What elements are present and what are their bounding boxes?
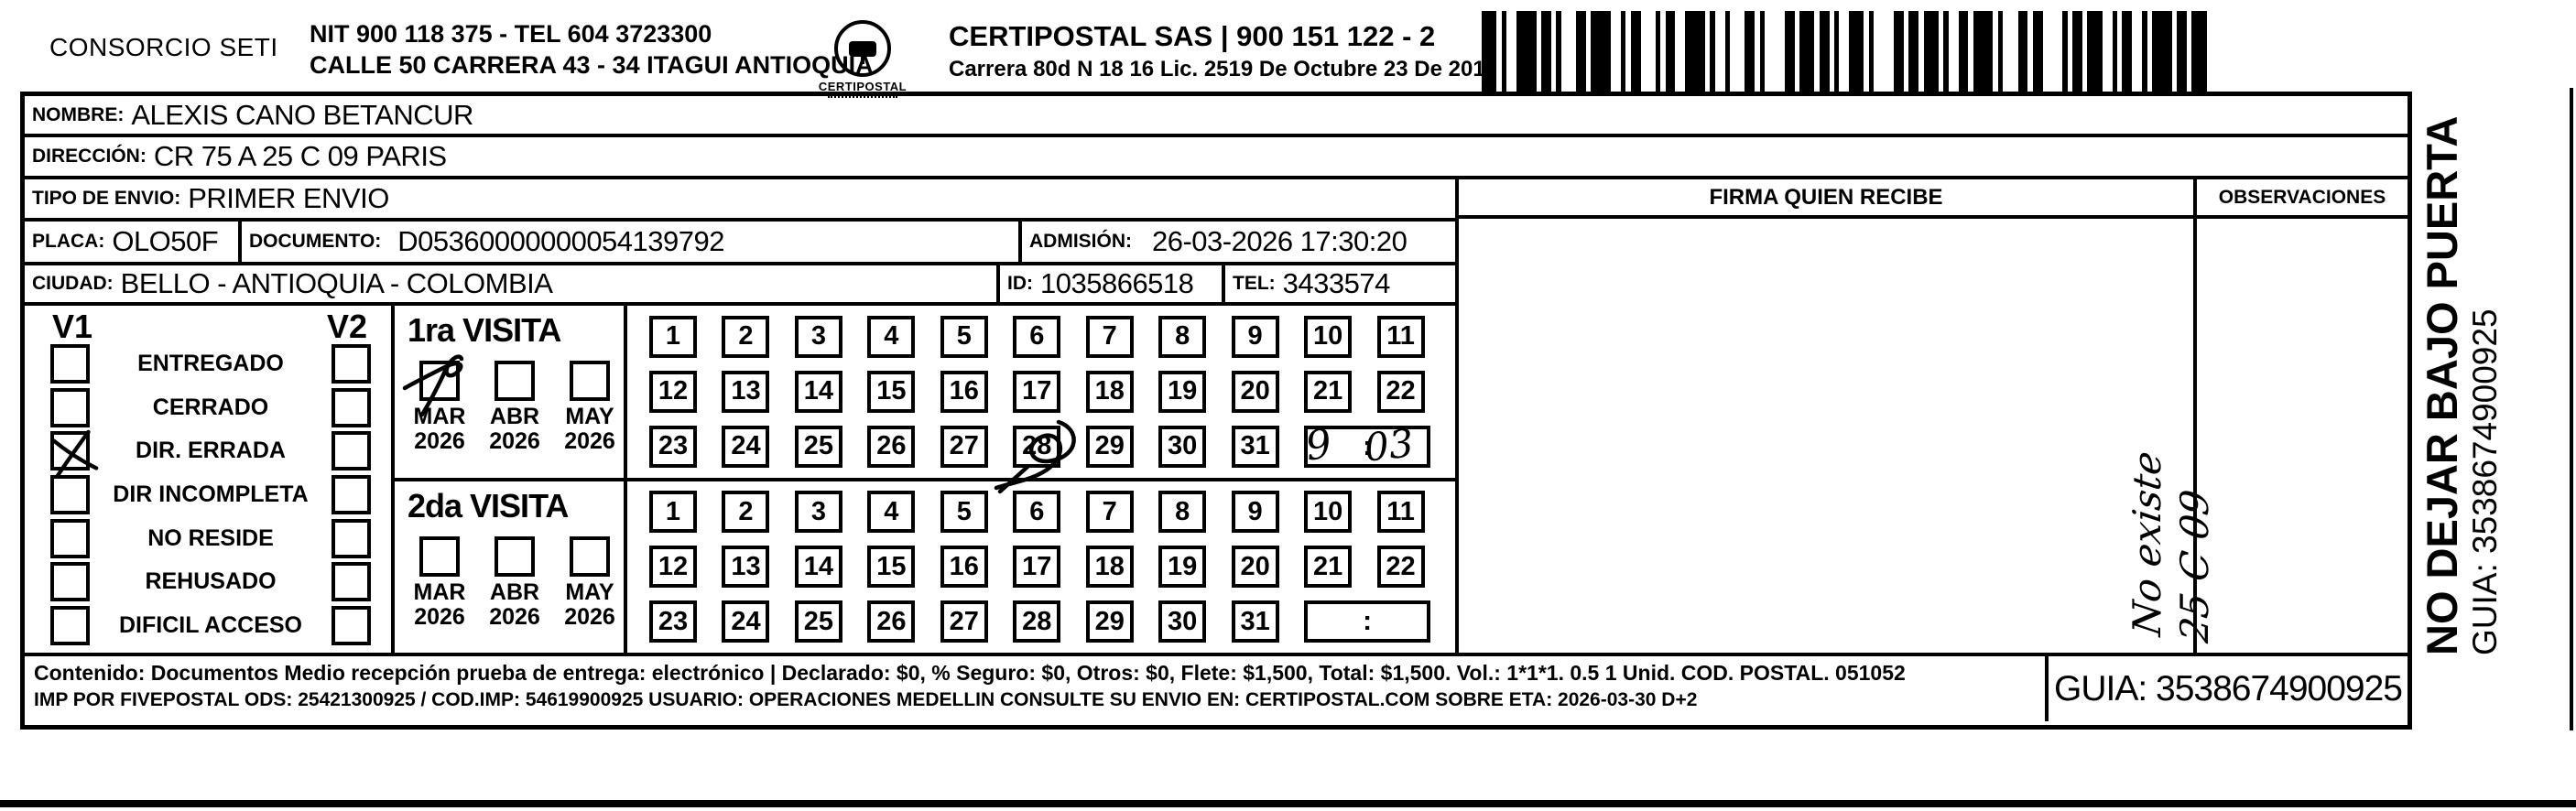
month-year-label: 2026 <box>564 605 615 630</box>
day-checkbox-13[interactable]: 13 <box>722 371 769 413</box>
day-checkbox-6[interactable]: 6 <box>1013 491 1060 533</box>
firma-header: FIRMA QUIEN RECIBE <box>1459 179 2193 219</box>
day-checkbox-19[interactable]: 19 <box>1158 371 1206 413</box>
barcode-bar <box>1675 11 1685 95</box>
month-column-mar: MAR2026 <box>406 536 473 630</box>
id-cell: ID: 1035866518 <box>996 265 1222 302</box>
day-checkbox-11[interactable]: 11 <box>1377 316 1425 358</box>
ciudad-value: BELLO - ANTIOQUIA - COLOMBIA <box>121 267 553 300</box>
v1-column-header: V1 <box>52 308 92 346</box>
day-checkbox-3[interactable]: 3 <box>795 491 842 533</box>
month-column-abr: ABR2026 <box>481 536 549 630</box>
placa-documento-row: PLACA: OLO50F DOCUMENTO: D05360000000054… <box>25 222 1455 265</box>
v1-checkbox-dir-errada[interactable] <box>50 431 90 470</box>
barcode-bar <box>1874 11 1894 95</box>
visit-month-panel: 2da VISITAMAR2026ABR2026MAY2026 <box>395 481 627 654</box>
month-checkbox-may[interactable] <box>570 361 610 401</box>
delivery-time-box[interactable]: : <box>1304 600 1430 643</box>
day-checkbox-14[interactable]: 14 <box>795 546 842 588</box>
day-checkbox-5[interactable]: 5 <box>940 491 988 533</box>
barcode-bar <box>1715 11 1725 95</box>
barcode-bar <box>1894 11 1904 95</box>
tel-label: TEL: <box>1233 273 1276 295</box>
day-checkbox-2[interactable]: 2 <box>722 316 769 358</box>
barcode-bar <box>2087 11 2102 95</box>
tel-cell: TEL: 3433574 <box>1222 265 1455 302</box>
barcode-bar <box>1576 11 1586 95</box>
v1-checkbox-no-reside[interactable] <box>50 519 90 558</box>
side-instruction: NO DEJAR BAJO PUERTA GUIA: 3538674900925 <box>2419 101 2505 655</box>
company-name: CONSORCIO SETI <box>49 33 278 62</box>
certipostal-logo: CERTIPOSTAL <box>811 20 914 98</box>
barcode-bar <box>1959 11 1969 95</box>
month-checkbox-may[interactable] <box>570 536 610 577</box>
day-checkbox-15[interactable]: 15 <box>867 371 915 413</box>
barcode-bar <box>1631 11 1641 95</box>
barcode-bar <box>1506 11 1516 95</box>
tipo-envio-label: TIPO DE ENVIO: <box>32 188 180 210</box>
id-value: 1035866518 <box>1040 267 1193 300</box>
page-right-rule <box>2570 88 2573 730</box>
day-checkbox-25[interactable]: 25 <box>795 600 842 643</box>
status-row: REHUSADO <box>25 562 391 601</box>
month-year-label: 2026 <box>489 429 540 454</box>
day-checkbox-5[interactable]: 5 <box>940 316 988 358</box>
day-checkbox-1[interactable]: 1 <box>649 316 697 358</box>
day-checkbox-9[interactable]: 9 <box>1232 316 1279 358</box>
v1-checkbox-cerrado[interactable] <box>50 388 90 427</box>
day-checkbox-30[interactable]: 30 <box>1158 426 1206 468</box>
status-option-label: DIR INCOMPLETA <box>90 481 332 508</box>
placa-label: PLACA: <box>32 231 104 253</box>
observaciones-area[interactable]: No existe 25 C 09 <box>2197 219 2408 653</box>
month-year-label: 2026 <box>489 605 540 630</box>
day-checkbox-17[interactable]: 17 <box>1013 546 1060 588</box>
nombre-label: NOMBRE: <box>32 104 124 126</box>
barcode-bar <box>1745 11 1755 95</box>
v1-checkbox-dir-incompleta[interactable] <box>50 475 90 514</box>
visit-day-grid: 1234567891011121314151617181920212223242… <box>627 306 1455 478</box>
ciudad-id-tel-row: CIUDAD: BELLO - ANTIOQUIA - COLOMBIA ID:… <box>25 265 1455 306</box>
day-checkbox-29[interactable]: 29 <box>1086 426 1134 468</box>
day-checkbox-27[interactable]: 27 <box>940 426 988 468</box>
day-checkbox-13[interactable]: 13 <box>722 546 769 588</box>
carrier-name: CERTIPOSTAL SAS | 900 151 122 - 2 <box>949 20 1435 53</box>
day-checkbox-28[interactable]: 28 <box>1013 426 1060 468</box>
day-checkbox-17[interactable]: 17 <box>1013 371 1060 413</box>
handwritten-hour: 9 <box>1303 420 1335 470</box>
contenido-cell: Contenido: Documentos Medio recepción pr… <box>25 656 2045 721</box>
status-row: DIR. ERRADA <box>25 431 391 470</box>
month-column-abr: ABR2026 <box>481 361 549 454</box>
barcode-bar <box>1785 11 1795 95</box>
barcode-bar <box>1685 11 1705 95</box>
barcode-bar <box>2122 11 2132 95</box>
v1-checkbox-dificil-acceso[interactable] <box>50 606 90 645</box>
company-address: NIT 900 118 375 - TEL 604 3723300 CALLE … <box>310 18 874 81</box>
v1-checkbox-entregado[interactable] <box>50 344 90 384</box>
v2-checkbox-cerrado[interactable] <box>332 388 371 427</box>
day-checkbox-26[interactable]: 26 <box>867 600 915 643</box>
placa-value: OLO50F <box>112 225 218 258</box>
company-nit-line: NIT 900 118 375 - TEL 604 3723300 <box>310 18 874 49</box>
day-checkbox-23[interactable]: 23 <box>649 426 697 468</box>
barcode-bar <box>1799 11 1814 95</box>
documento-value: D05360000000054139792 <box>397 225 724 258</box>
barcode <box>1482 11 2207 95</box>
v2-checkbox-dificil-acceso[interactable] <box>332 606 371 645</box>
observaciones-column: OBSERVACIONES No existe 25 C 09 <box>2197 179 2408 653</box>
day-checkbox-3[interactable]: 3 <box>795 316 842 358</box>
v2-checkbox-rehusado[interactable] <box>332 562 371 601</box>
day-checkbox-31[interactable]: 31 <box>1232 600 1279 643</box>
month-label: MAR <box>414 580 466 605</box>
day-checkbox-10[interactable]: 10 <box>1304 491 1352 533</box>
delivery-form: NOMBRE: ALEXIS CANO BETANCUR DIRECCIÓN: … <box>20 92 2412 730</box>
day-checkbox-29[interactable]: 29 <box>1086 600 1134 643</box>
status-option-label: DIR. ERRADA <box>90 438 332 464</box>
barcode-bar <box>1949 11 1959 95</box>
month-checkbox-mar[interactable] <box>419 361 460 401</box>
status-option-label: NO RESIDE <box>90 525 332 552</box>
barcode-bar <box>1924 11 1939 95</box>
status-row: DIFICIL ACCESO <box>25 606 391 645</box>
v2-column-header: V2 <box>327 308 367 346</box>
day-checkbox-8[interactable]: 8 <box>1158 491 1206 533</box>
barcode-bar <box>1820 11 1830 95</box>
barcode-bar <box>1973 11 1994 95</box>
barcode-bar <box>1666 11 1676 95</box>
barcode-bar <box>2003 11 2017 95</box>
v2-checkbox-dir-errada[interactable] <box>332 431 371 470</box>
carrier-address: Carrera 80d N 18 16 Lic. 2519 De Octubre… <box>949 57 1497 82</box>
barcode-bar <box>2177 11 2187 95</box>
day-checkbox-10[interactable]: 10 <box>1304 316 1352 358</box>
day-checkbox-19[interactable]: 19 <box>1158 546 1206 588</box>
day-checkbox-18[interactable]: 18 <box>1086 546 1134 588</box>
barcode-bar <box>1839 11 1849 95</box>
firma-column: FIRMA QUIEN RECIBE <box>1459 179 2197 653</box>
barcode-bar <box>1641 11 1656 95</box>
v2-checkbox-dir-incompleta[interactable] <box>332 475 371 514</box>
visit-month-panel: 1ra VISITAMAR2026ABR2026MAY2026 <box>395 306 627 478</box>
month-year-label: 2026 <box>414 605 465 630</box>
nombre-row: NOMBRE: ALEXIS CANO BETANCUR <box>25 96 2408 137</box>
barcode-bar <box>1730 11 1745 95</box>
day-checkbox-20[interactable]: 20 <box>1232 371 1279 413</box>
month-label: MAY <box>565 580 614 605</box>
day-checkbox-24[interactable]: 24 <box>722 600 769 643</box>
v2-checkbox-entregado[interactable] <box>332 344 371 384</box>
visit-day-grid: 1234567891011121314151617181920212223242… <box>627 481 1455 654</box>
placa-cell: PLACA: OLO50F <box>25 222 238 262</box>
day-checkbox-12[interactable]: 12 <box>649 371 697 413</box>
direccion-row: DIRECCIÓN: CR 75 A 25 C 09 PARIS <box>25 137 2408 179</box>
barcode-bar <box>1908 11 1918 95</box>
month-year-label: 2026 <box>564 429 615 454</box>
day-checkbox-14[interactable]: 14 <box>795 371 842 413</box>
barcode-bar <box>1611 11 1621 95</box>
tipo-envio-row: TIPO DE ENVIO: PRIMER ENVIO <box>25 179 1455 222</box>
day-checkbox-7[interactable]: 7 <box>1086 316 1134 358</box>
observaciones-header: OBSERVACIONES <box>2197 179 2408 219</box>
tipo-envio-value: PRIMER ENVIO <box>188 182 389 215</box>
contenido-line2: IMP POR FIVEPOSTAL ODS: 25421300925 / CO… <box>34 689 2036 711</box>
no-dejar-bajo-puerta-text: NO DEJAR BAJO PUERTA <box>2419 101 2465 655</box>
shipment-details-column: TIPO DE ENVIO: PRIMER ENVIO PLACA: OLO50… <box>25 179 1459 653</box>
day-checkbox-2[interactable]: 2 <box>722 491 769 533</box>
day-checkbox-31[interactable]: 31 <box>1232 426 1279 468</box>
direccion-label: DIRECCIÓN: <box>32 146 147 168</box>
barcode-bar <box>2018 11 2028 95</box>
status-option-label: ENTREGADO <box>90 351 332 377</box>
day-checkbox-4[interactable]: 4 <box>867 316 915 358</box>
status-option-label: DIFICIL ACCESO <box>90 612 332 639</box>
day-checkbox-12[interactable]: 12 <box>649 546 697 588</box>
day-checkbox-1[interactable]: 1 <box>649 491 697 533</box>
id-label: ID: <box>1007 273 1033 295</box>
month-checkbox-grid: MAR2026ABR2026MAY2026 <box>406 361 624 454</box>
day-checkbox-26[interactable]: 26 <box>867 426 915 468</box>
barcode-bar <box>1541 11 1551 95</box>
month-label: MAR <box>414 405 466 429</box>
documento-label: DOCUMENTO: <box>249 231 381 253</box>
day-checkbox-6[interactable]: 6 <box>1013 316 1060 358</box>
month-label: ABR <box>490 405 539 429</box>
day-checkbox-22[interactable]: 22 <box>1377 371 1425 413</box>
barcode-bar <box>2043 11 2063 95</box>
visit-title: 1ra VISITA <box>408 311 624 350</box>
barcode-bar <box>2152 11 2172 95</box>
status-row: CERRADO <box>25 388 391 427</box>
month-year-label: 2026 <box>414 429 465 454</box>
visit-section-1: 1ra VISITAMAR2026ABR2026MAY2026123456789… <box>395 306 1455 478</box>
barcode-bar <box>1849 11 1864 95</box>
delivery-receipt-page: CONSORCIO SETI NIT 900 118 375 - TEL 604… <box>0 0 2576 811</box>
admision-label: ADMISIÓN: <box>1029 231 1132 253</box>
day-checkbox-30[interactable]: 30 <box>1158 600 1206 643</box>
barcode-bar <box>2132 11 2142 95</box>
day-checkbox-21[interactable]: 21 <box>1304 371 1352 413</box>
month-checkbox-abr[interactable] <box>495 361 535 401</box>
v2-checkbox-no-reside[interactable] <box>332 519 371 558</box>
admision-value: 26-03-2026 17:30:20 <box>1152 225 1407 258</box>
day-checkbox-8[interactable]: 8 <box>1158 316 1206 358</box>
month-checkbox-abr[interactable] <box>495 536 535 577</box>
day-checkbox-16[interactable]: 16 <box>940 371 988 413</box>
ciudad-cell: CIUDAD: BELLO - ANTIOQUIA - COLOMBIA <box>25 265 996 302</box>
status-row: NO RESIDE <box>25 519 391 558</box>
admision-cell: ADMISIÓN: 26-03-2026 17:30:20 <box>1018 222 1455 262</box>
barcode-bar <box>2033 11 2043 95</box>
status-row: ENTREGADO <box>25 344 391 384</box>
direccion-value: CR 75 A 25 C 09 PARIS <box>154 140 447 173</box>
nombre-value: ALEXIS CANO BETANCUR <box>131 99 473 132</box>
v1-checkbox-rehusado[interactable] <box>50 562 90 601</box>
day-checkbox-23[interactable]: 23 <box>649 600 697 643</box>
documento-cell: DOCUMENTO: D05360000000054139792 <box>238 222 1018 262</box>
day-checkbox-21[interactable]: 21 <box>1304 546 1352 588</box>
company-address-line: CALLE 50 CARRERA 43 - 34 ITAGUI ANTIOQUI… <box>310 49 874 81</box>
barcode-bar <box>1516 11 1537 95</box>
day-checkbox-4[interactable]: 4 <box>867 491 915 533</box>
month-checkbox-mar[interactable] <box>419 536 460 577</box>
month-checkbox-grid: MAR2026ABR2026MAY2026 <box>406 536 624 630</box>
day-checkbox-11[interactable]: 11 <box>1377 491 1425 533</box>
day-checkbox-28[interactable]: 28 <box>1013 600 1060 643</box>
day-checkbox-24[interactable]: 24 <box>722 426 769 468</box>
time-colon: : <box>1363 606 1372 637</box>
month-column-may: MAY2026 <box>556 361 624 454</box>
status-option-label: CERRADO <box>90 395 332 421</box>
barcode-bar <box>2103 11 2113 95</box>
status-row: DIR INCOMPLETA <box>25 475 391 514</box>
month-column-may: MAY2026 <box>556 536 624 630</box>
day-checkbox-15[interactable]: 15 <box>867 546 915 588</box>
barcode-bar <box>1561 11 1576 95</box>
visit-section-2: 2da VISITAMAR2026ABR2026MAY2026123456789… <box>395 478 1455 654</box>
page-bottom-rule <box>0 800 2576 807</box>
day-checkbox-9[interactable]: 9 <box>1232 491 1279 533</box>
delivery-status-panel: V1 V2 ENTREGADOCERRADODIR. ERRADADIR INC… <box>25 306 395 653</box>
day-checkbox-27[interactable]: 27 <box>940 600 988 643</box>
tel-value: 3433574 <box>1283 267 1390 300</box>
side-guia-number: GUIA: 3538674900925 <box>2465 101 2505 655</box>
day-checkbox-16[interactable]: 16 <box>940 546 988 588</box>
barcode-bar <box>1765 11 1785 95</box>
barcode-bar <box>1591 11 1611 95</box>
month-label: ABR <box>490 580 539 605</box>
postal-logo-icon <box>834 20 891 77</box>
ciudad-label: CIUDAD: <box>32 273 114 295</box>
guia-number: GUIA: 3538674900925 <box>2045 656 2408 721</box>
signature-area[interactable] <box>1459 219 2193 653</box>
day-checkbox-22[interactable]: 22 <box>1377 546 1425 588</box>
handwritten-observation: No existe 25 C 09 <box>2124 449 2219 645</box>
visit-title: 2da VISITA <box>408 487 624 525</box>
barcode-bar <box>2191 11 2206 95</box>
month-column-mar: MAR2026 <box>406 361 473 454</box>
delivery-time-box[interactable]: :903 <box>1304 426 1430 468</box>
month-label: MAY <box>565 405 614 429</box>
day-checkbox-18[interactable]: 18 <box>1086 371 1134 413</box>
barcode-bar <box>1482 11 1496 95</box>
handwritten-minutes: 03 <box>1363 420 1416 470</box>
day-checkbox-25[interactable]: 25 <box>795 426 842 468</box>
contenido-line1: Contenido: Documentos Medio recepción pr… <box>34 661 2036 686</box>
day-checkbox-20[interactable]: 20 <box>1232 546 1279 588</box>
barcode-bar <box>2072 11 2082 95</box>
day-checkbox-7[interactable]: 7 <box>1086 491 1134 533</box>
status-option-label: REHUSADO <box>90 568 332 595</box>
